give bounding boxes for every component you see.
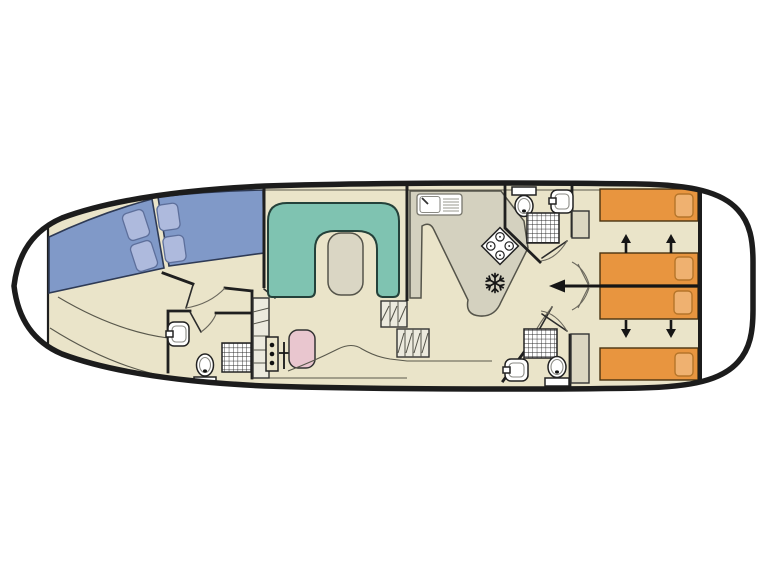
wardrobe [572, 211, 589, 238]
shower-icon [222, 343, 251, 372]
bed-pillow [675, 194, 693, 217]
sink-icon [166, 322, 189, 346]
helm-seat [289, 330, 315, 368]
bow-pillow [162, 235, 186, 264]
sink-icon [503, 359, 528, 381]
bow-pillow [156, 203, 180, 232]
sink-icon [549, 190, 573, 213]
helm-control-knob [270, 352, 275, 357]
boat-floor-plan [0, 0, 768, 576]
helm-control-knob [270, 343, 275, 348]
bed-pillow [675, 353, 693, 376]
shower-icon [527, 213, 559, 243]
shower-icon [524, 329, 557, 358]
helm-control-knob [270, 361, 275, 366]
bed-pillow [675, 257, 693, 280]
floor-plan-canvas [0, 0, 768, 576]
bed-pillow [674, 291, 692, 314]
sink-drainer-icon [417, 194, 462, 215]
wardrobe [571, 334, 589, 383]
saloon-table [328, 233, 363, 295]
